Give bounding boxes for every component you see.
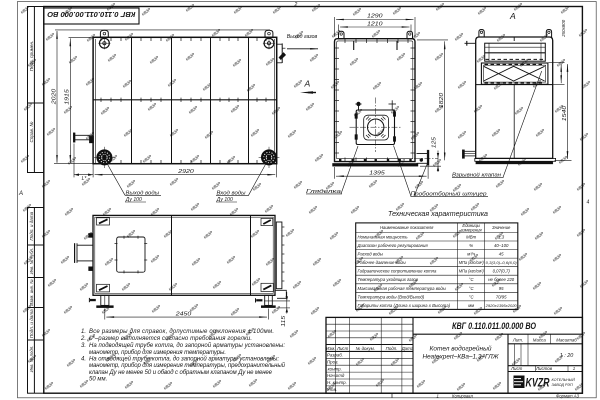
svg-text:КВЗР: КВЗР [309,52,320,62]
svg-text:KVZR: KVZR [526,377,551,389]
svg-text:КВЗР: КВЗР [453,330,464,340]
svg-text:70/95: 70/95 [496,294,507,299]
svg-text:КВЗР: КВЗР [46,126,57,136]
svg-text:1210: 1210 [367,21,384,27]
svg-text:Копировал: Копировал [452,393,473,398]
svg-text:4.: 4. [81,357,86,363]
svg-text:КВЗР: КВЗР [124,379,135,389]
svg-text:КВЗР: КВЗР [579,278,590,288]
svg-text:Масштаб: Масштаб [556,337,577,342]
svg-text:КВЗР: КВЗР [41,327,52,337]
svg-text:Нач.отд: Нач.отд [327,373,345,378]
svg-text:измерения: измерения [461,227,483,232]
svg-text:КВЗР: КВЗР [414,179,425,189]
svg-text:40–100: 40–100 [494,243,509,248]
svg-text:КВЗР: КВЗР [368,178,379,188]
svg-text:мм: мм [468,303,474,308]
svg-text:50 мм.: 50 мм. [89,376,107,382]
svg-text:КВЗР: КВЗР [396,51,407,61]
svg-text:2.: 2. [80,336,86,342]
svg-text:КВЗР: КВЗР [250,127,261,137]
svg-text:КВЗР: КВЗР [60,254,71,264]
svg-text:КВЗР: КВЗР [212,378,223,388]
svg-text:КВЗР: КВЗР [121,281,132,291]
svg-text:МПа (кгс/см²): МПа (кгс/см²) [459,269,485,274]
svg-text:КВЗР: КВЗР [63,304,74,314]
svg-text:Подп. и дата: Подп. и дата [29,309,34,338]
svg-text:Перв. примен.: Перв. примен. [29,41,34,72]
svg-text:м³/ч: м³/ч [467,252,476,257]
svg-text:КВЗР: КВЗР [293,179,304,189]
svg-text:КВЗР: КВЗР [533,181,544,191]
svg-text:2920: 2920 [177,169,195,175]
svg-text:Лист: Лист [510,366,523,371]
svg-text:Наименование показателя: Наименование показателя [380,225,434,230]
svg-text:Габариты котла (Длина х ширина: Габариты котла (Длина х ширина х Высота) [358,303,451,308]
svg-text:КВЗР: КВЗР [305,101,316,111]
svg-text:Выход газов: Выход газов [287,34,318,40]
svg-text:На подводящей трубе котла, до: На подводящей трубе котла, до запорной а… [89,342,285,349]
svg-text:КВЗР: КВЗР [372,80,383,90]
svg-text:КВЗР: КВЗР [495,178,506,188]
svg-text:КВЗР: КВЗР [289,328,300,338]
svg-text:115: 115 [281,315,287,327]
svg-text:L*–размер выполняется согласно: L*–размер выполняется согласно требовани… [89,336,252,342]
svg-text:КВЗР: КВЗР [246,82,257,92]
svg-text:На отводящей трубе котла, до з: На отводящей трубе котла, до запорной ар… [89,356,279,363]
svg-text:Диапазон рабочего регулировани: Диапазон рабочего регулирования [357,243,429,248]
svg-text:Разраб.: Разраб. [327,353,343,358]
svg-text:КВЗР: КВЗР [578,27,589,37]
svg-text:Техническая характеристика: Техническая характеристика [388,209,488,218]
svg-text:Рабочее давление воды: Рабочее давление воды [358,260,407,265]
svg-text:манометр, прибор для измерения: манометр, прибор для измерения температу… [89,350,226,356]
svg-text:КВЗР: КВЗР [473,305,484,315]
svg-text:КВЗР: КВЗР [350,204,361,214]
svg-text:2920х1395х2020: 2920х1395х2020 [485,304,518,308]
svg-text:Взам. инв. №: Взам. инв. № [29,279,34,306]
svg-text:КВЗР: КВЗР [311,2,322,12]
svg-text:КВЗР: КВЗР [191,256,202,266]
svg-text:КВЗР: КВЗР [250,228,261,238]
svg-text:Максимальная рабочая температу: Максимальная рабочая температура воды [358,286,447,291]
svg-text:КВЗР: КВЗР [45,31,56,41]
svg-text:КВЗР: КВЗР [310,305,321,315]
svg-text:КВЗР: КВЗР [308,204,319,214]
svg-text:45: 45 [499,252,504,257]
svg-text:Подп. и дата: Подп. и дата [29,211,34,240]
svg-text:КВЗР: КВЗР [41,76,52,86]
svg-text:КВЗР: КВЗР [47,277,58,287]
svg-text:КВЗР: КВЗР [163,380,174,390]
svg-text:Значение: Значение [492,225,511,230]
svg-text:1 : 20: 1 : 20 [560,353,574,359]
svg-text:КВЗР: КВЗР [574,381,585,391]
svg-text:КВЗР: КВЗР [553,305,564,315]
svg-text:КВЗР: КВЗР [265,256,276,266]
svg-text:4: 4 [587,200,590,206]
svg-text:1395: 1395 [369,170,386,176]
svg-text:КВЗР: КВЗР [44,380,55,390]
svg-text:КВЗР: КВЗР [576,181,587,191]
svg-text:Гидравлическое сопротивление к: Гидравлическое сопротивление котла [358,269,438,274]
svg-text:Справ. №: Справ. № [29,122,34,143]
svg-text:КВЗР: КВЗР [169,176,180,186]
svg-text:КВГ 0.110.011.00.000 ВО: КВГ 0.110.011.00.000 ВО [452,321,536,331]
svg-text:1.: 1. [81,329,86,335]
svg-text:КВЗР: КВЗР [413,80,424,90]
svg-text:манометр, прибор для измерения: манометр, прибор для измерения температу… [89,362,286,369]
svg-text:клапан Ду не менее 50 и обвод: клапан Ду не менее 50 и обвод с обратным… [89,370,273,376]
svg-text:КВЗР: КВЗР [369,331,380,341]
svg-text:Расход воды: Расход воды [358,252,384,257]
svg-text:КВЗР: КВЗР [307,355,318,365]
svg-text:1: 1 [437,393,439,398]
svg-text:КВЗР: КВЗР [202,81,213,91]
svg-text:КВЗР: КВЗР [429,255,440,265]
svg-text:КВЗР: КВЗР [352,6,363,16]
svg-text:3.: 3. [81,343,86,349]
svg-text:1290: 1290 [367,14,384,20]
svg-text:Лит.: Лит. [512,337,523,342]
svg-text:2: 2 [294,2,298,8]
svg-text:КВЗР: КВЗР [226,254,237,264]
svg-text:Лист: Лист [336,346,349,351]
svg-text:КВЗР: КВЗР [150,253,161,263]
svg-text:не более 220: не более 220 [488,277,515,282]
svg-text:Пров.: Пров. [327,359,339,364]
svg-text:КВЗР: КВЗР [63,104,74,114]
svg-text:250х800: 250х800 [561,19,566,37]
svg-text:КВГ 0.110.011.00.000 ВО: КВГ 0.110.011.00.000 ВО [47,10,135,19]
svg-text:Инв. № дубл.: Инв. № дубл. [29,248,34,274]
svg-text:КВЗР: КВЗР [104,256,115,266]
svg-text:2450: 2450 [175,311,193,317]
svg-text:КВЗР: КВЗР [232,57,243,67]
svg-text:КВЗР: КВЗР [107,52,118,62]
svg-text:КВЗР: КВЗР [100,105,111,115]
svg-text:КВЗР: КВЗР [454,281,465,291]
svg-text:КВЗР: КВЗР [147,101,158,111]
svg-text:КВЗР: КВЗР [415,230,426,240]
svg-text:°С: °С [469,277,475,282]
svg-text:КВЗР: КВЗР [329,230,340,240]
svg-text:Температура воды (Вход/Выход): Температура воды (Вход/Выход) [358,294,425,299]
svg-text:Утв.: Утв. [327,387,337,392]
svg-text:А: А [509,11,516,21]
svg-text:КВЗР: КВЗР [212,279,223,289]
svg-text:Подп.: Подп. [386,346,398,351]
svg-text:КВЗР: КВЗР [211,180,222,190]
svg-text:Все размеры для справок, допус: Все размеры для справок, допустимые откл… [89,329,274,335]
svg-text:КВЗР: КВЗР [204,129,215,139]
svg-text:%: % [469,243,473,248]
svg-text:КВЗР: КВЗР [558,154,569,164]
svg-text:0,3(3,0)–0,6(6,0): 0,3(3,0)–0,6(6,0) [486,261,518,265]
svg-text:КВЗР: КВЗР [185,2,196,12]
svg-text:0,07(0,7): 0,07(0,7) [493,269,511,274]
svg-text:КВЗР: КВЗР [473,103,484,113]
svg-text:№ докум.: № докум. [356,346,375,351]
svg-text:КВЗР: КВЗР [332,277,343,287]
svg-text:КВЗР: КВЗР [244,27,255,37]
svg-text:КВЗР: КВЗР [535,127,546,137]
svg-text:КВЗР: КВЗР [285,227,296,237]
svg-text:КВЗР: КВЗР [579,131,590,141]
svg-text:95: 95 [499,286,504,291]
svg-text:КВЗР: КВЗР [494,331,505,341]
svg-text:МВт: МВт [466,234,476,239]
svg-text:Изм.: Изм. [326,346,335,351]
svg-text:КВЗР: КВЗР [371,28,382,38]
svg-text:КВЗР: КВЗР [287,128,298,138]
svg-text:КВЗР: КВЗР [251,276,262,286]
svg-text:Н. контр.: Н. контр. [327,380,347,385]
svg-text:КВЗР: КВЗР [287,380,298,390]
svg-text:Формат А3: Формат А3 [556,393,580,398]
svg-text:Температура уходящих газов: Температура уходящих газов [358,277,419,282]
svg-text:КВЗР: КВЗР [349,56,360,66]
svg-text:Инв. № подл.: Инв. № подл. [29,346,34,373]
svg-text:КВЗР: КВЗР [230,306,241,316]
svg-text:125: 125 [431,136,437,148]
svg-text:КВЗР: КВЗР [292,279,303,289]
svg-text:МПа (кгс/см²): МПа (кгс/см²) [459,260,485,265]
svg-text:КВЗР: КВЗР [126,178,137,188]
svg-text:Heatexpert–КВа–1,3–ГЛЖ: Heatexpert–КВа–1,3–ГЛЖ [423,354,500,361]
svg-text:КВЗР: КВЗР [211,27,222,37]
svg-text:КВЗР: КВЗР [514,105,525,115]
svg-text:КВЗР: КВЗР [64,206,75,216]
svg-text:А: А [18,191,23,197]
svg-text:КВЗР: КВЗР [163,228,174,238]
svg-text:КВЗР: КВЗР [149,54,160,64]
svg-text:КВЗР: КВЗР [327,328,338,338]
svg-text:КВЗР: КВЗР [518,251,529,261]
svg-text:КВЗР: КВЗР [41,228,52,238]
svg-text:КВЗР: КВЗР [169,127,180,137]
svg-text:КВЗР: КВЗР [41,178,52,188]
svg-text:КВЗР: КВЗР [66,357,77,367]
svg-text:°С: °С [469,294,475,299]
svg-text:КВЗР: КВЗР [20,153,31,163]
svg-text:КВЗР: КВЗР [576,330,587,340]
svg-text:А: А [304,79,311,89]
svg-text:КВЗР: КВЗР [188,104,199,114]
svg-text:КВЗР: КВЗР [190,201,201,211]
svg-text:Дата: Дата [401,346,414,351]
svg-text:КВЗР: КВЗР [141,6,152,16]
svg-text:КВЗР: КВЗР [314,152,325,162]
svg-text:КОТЕЛЬНЫЙ: КОТЕЛЬНЫЙ [552,378,576,382]
svg-text:КВЗР: КВЗР [248,377,259,387]
svg-text:контр.: контр. [328,366,342,371]
svg-text:КВЗР: КВЗР [167,77,178,87]
svg-text:КВЗР: КВЗР [532,280,543,290]
svg-text:1,3: 1,3 [498,234,505,239]
svg-text:КВЗР: КВЗР [576,227,587,237]
svg-text:КВЗР: КВЗР [457,129,468,139]
svg-text:КВЗР: КВЗР [85,76,96,86]
svg-text:КВЗР: КВЗР [456,381,467,391]
svg-text:Котел водогрейный: Котел водогрейный [430,344,492,352]
svg-text:КВЗР: КВЗР [492,380,503,390]
svg-text:КВЗР: КВЗР [454,31,465,41]
svg-text:1: 1 [573,366,576,371]
svg-text:КВЗР: КВЗР [203,229,214,239]
svg-text:2020: 2020 [51,88,57,106]
svg-text:КВЗР: КВЗР [230,103,241,113]
svg-text:КВЗР: КВЗР [151,303,162,313]
svg-text:КВЗР: КВЗР [123,127,134,137]
svg-text:1540: 1540 [562,105,568,122]
svg-text:КВЗР: КВЗР [293,78,304,88]
svg-text:КВЗР: КВЗР [79,281,90,291]
svg-text:°С: °С [469,286,475,291]
svg-text:1820: 1820 [439,92,445,109]
svg-text:КВЗР: КВЗР [312,256,323,266]
svg-text:КВЗР: КВЗР [416,378,427,388]
svg-text:КВЗР: КВЗР [67,155,78,165]
svg-text:КВЗР: КВЗР [552,252,563,262]
svg-text:КВЗР: КВЗР [168,281,179,291]
svg-text:КВЗР: КВЗР [491,127,502,137]
svg-text:1915: 1915 [65,88,71,105]
svg-text:КВЗР: КВЗР [457,79,468,89]
svg-text:КВЗР: КВЗР [520,206,531,216]
svg-text:КВЗР: КВЗР [552,204,563,214]
svg-text:КВЗР: КВЗР [185,51,196,61]
svg-text:КВЗР: КВЗР [534,230,545,240]
svg-text:Листов: Листов [535,366,553,371]
svg-text:КВЗР: КВЗР [434,51,445,61]
svg-text:Масса: Масса [533,337,547,342]
svg-text:ЗАВОД РЭП: ЗАВОД РЭП [552,383,573,387]
svg-text:КВЗР: КВЗР [264,203,275,213]
svg-text:КВЗР: КВЗР [68,54,79,64]
svg-text:Номинальная мощность: Номинальная мощность [358,234,409,239]
